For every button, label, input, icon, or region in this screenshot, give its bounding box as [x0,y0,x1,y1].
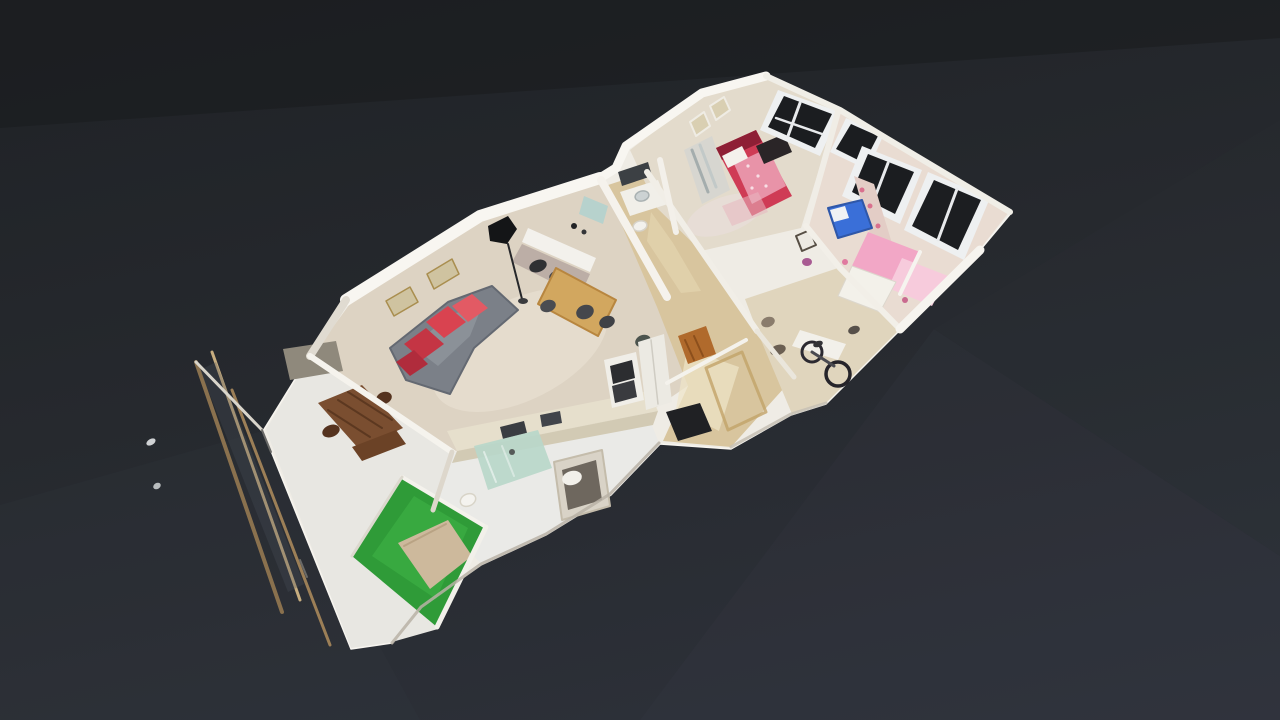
floral-dot-2 [868,204,873,209]
shower-head [509,449,515,455]
bg-band-top-dark [0,0,1280,128]
quilt-dot-2 [756,174,759,177]
quilt-dot-4 [750,186,753,189]
quilt-dot-1 [746,164,749,167]
floral-dot-1 [860,188,865,193]
counter-item-2 [582,230,587,235]
dollhouse-viewport[interactable] [0,0,1280,720]
floor-lamp-base [518,298,528,304]
kids-toy-2 [842,259,848,265]
dollhouse-scene-svg[interactable] [0,0,1280,720]
kids-toy-1 [902,297,908,303]
hall-flowers [802,258,812,266]
counter-item-1 [571,223,577,229]
scan-fragment-1 [145,437,157,447]
quilt-dot-3 [764,184,767,187]
floral-dot-3 [876,224,881,229]
